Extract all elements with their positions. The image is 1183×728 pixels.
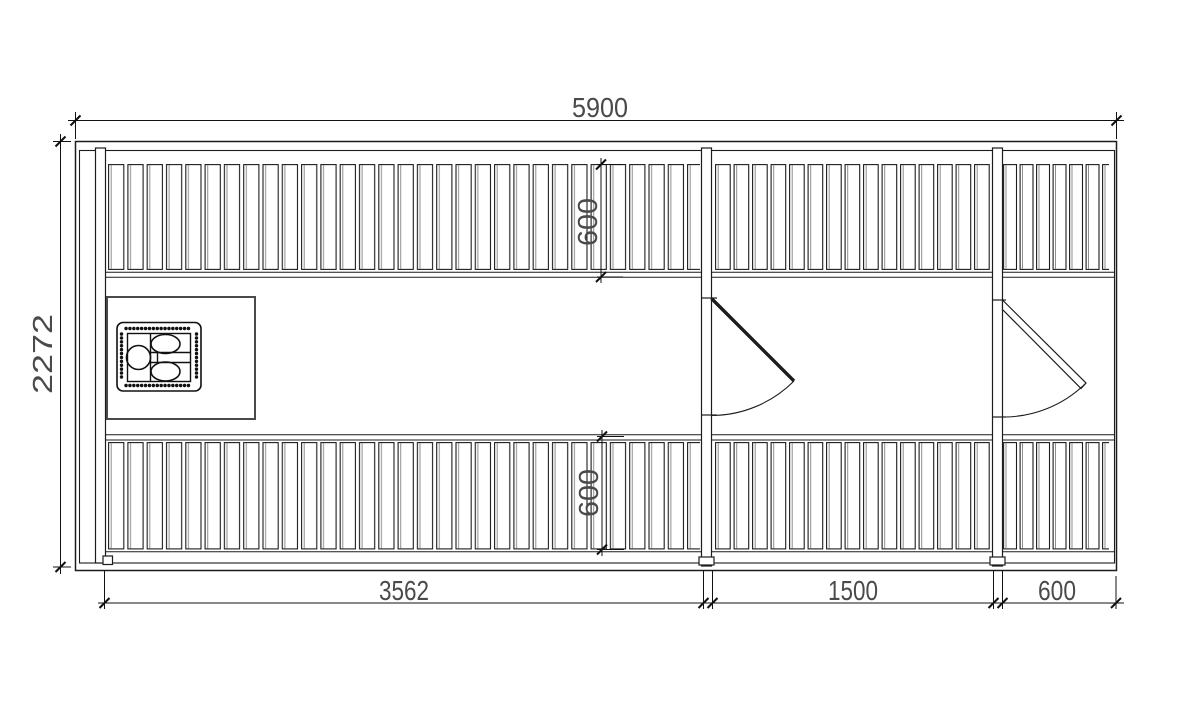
wall-post-left-foot (103, 556, 113, 565)
cad-viewport: 5900 2272 3562 1500 600 600 (0, 0, 1183, 728)
partition-wall-1-foot (699, 557, 714, 565)
floor-plan-drawing: 5900 2272 3562 1500 600 600 (0, 0, 1183, 728)
bench-slats-top-middle (715, 164, 992, 270)
partition-wall-2 (993, 148, 1003, 566)
overall-width-label: 5900 (572, 92, 628, 123)
bench-slats-bottom-middle (715, 442, 992, 550)
middle-room-width-label: 1500 (828, 575, 878, 606)
partition-wall-1 (702, 148, 712, 566)
bench-top (105, 164, 1115, 277)
bench-slats-top-left (108, 164, 700, 270)
wall-post-left (96, 148, 106, 563)
bench-slats-bottom-left (108, 442, 700, 550)
bench-slats-bottom-right (1003, 442, 1109, 550)
bench-bottom-depth-label: 600 (573, 469, 604, 517)
bench-slats-top-right (1003, 164, 1109, 270)
bench-top-depth-label: 600 (572, 198, 603, 246)
right-room-width-label: 600 (1038, 575, 1076, 606)
partition-wall-2-foot (990, 557, 1005, 565)
sauna-heater-symbol (117, 323, 201, 392)
dimension-room-widths (98, 570, 1124, 609)
overall-depth-label: 2272 (27, 314, 58, 394)
bench-bottom (105, 435, 1115, 552)
left-room-width-label: 3562 (379, 575, 429, 606)
